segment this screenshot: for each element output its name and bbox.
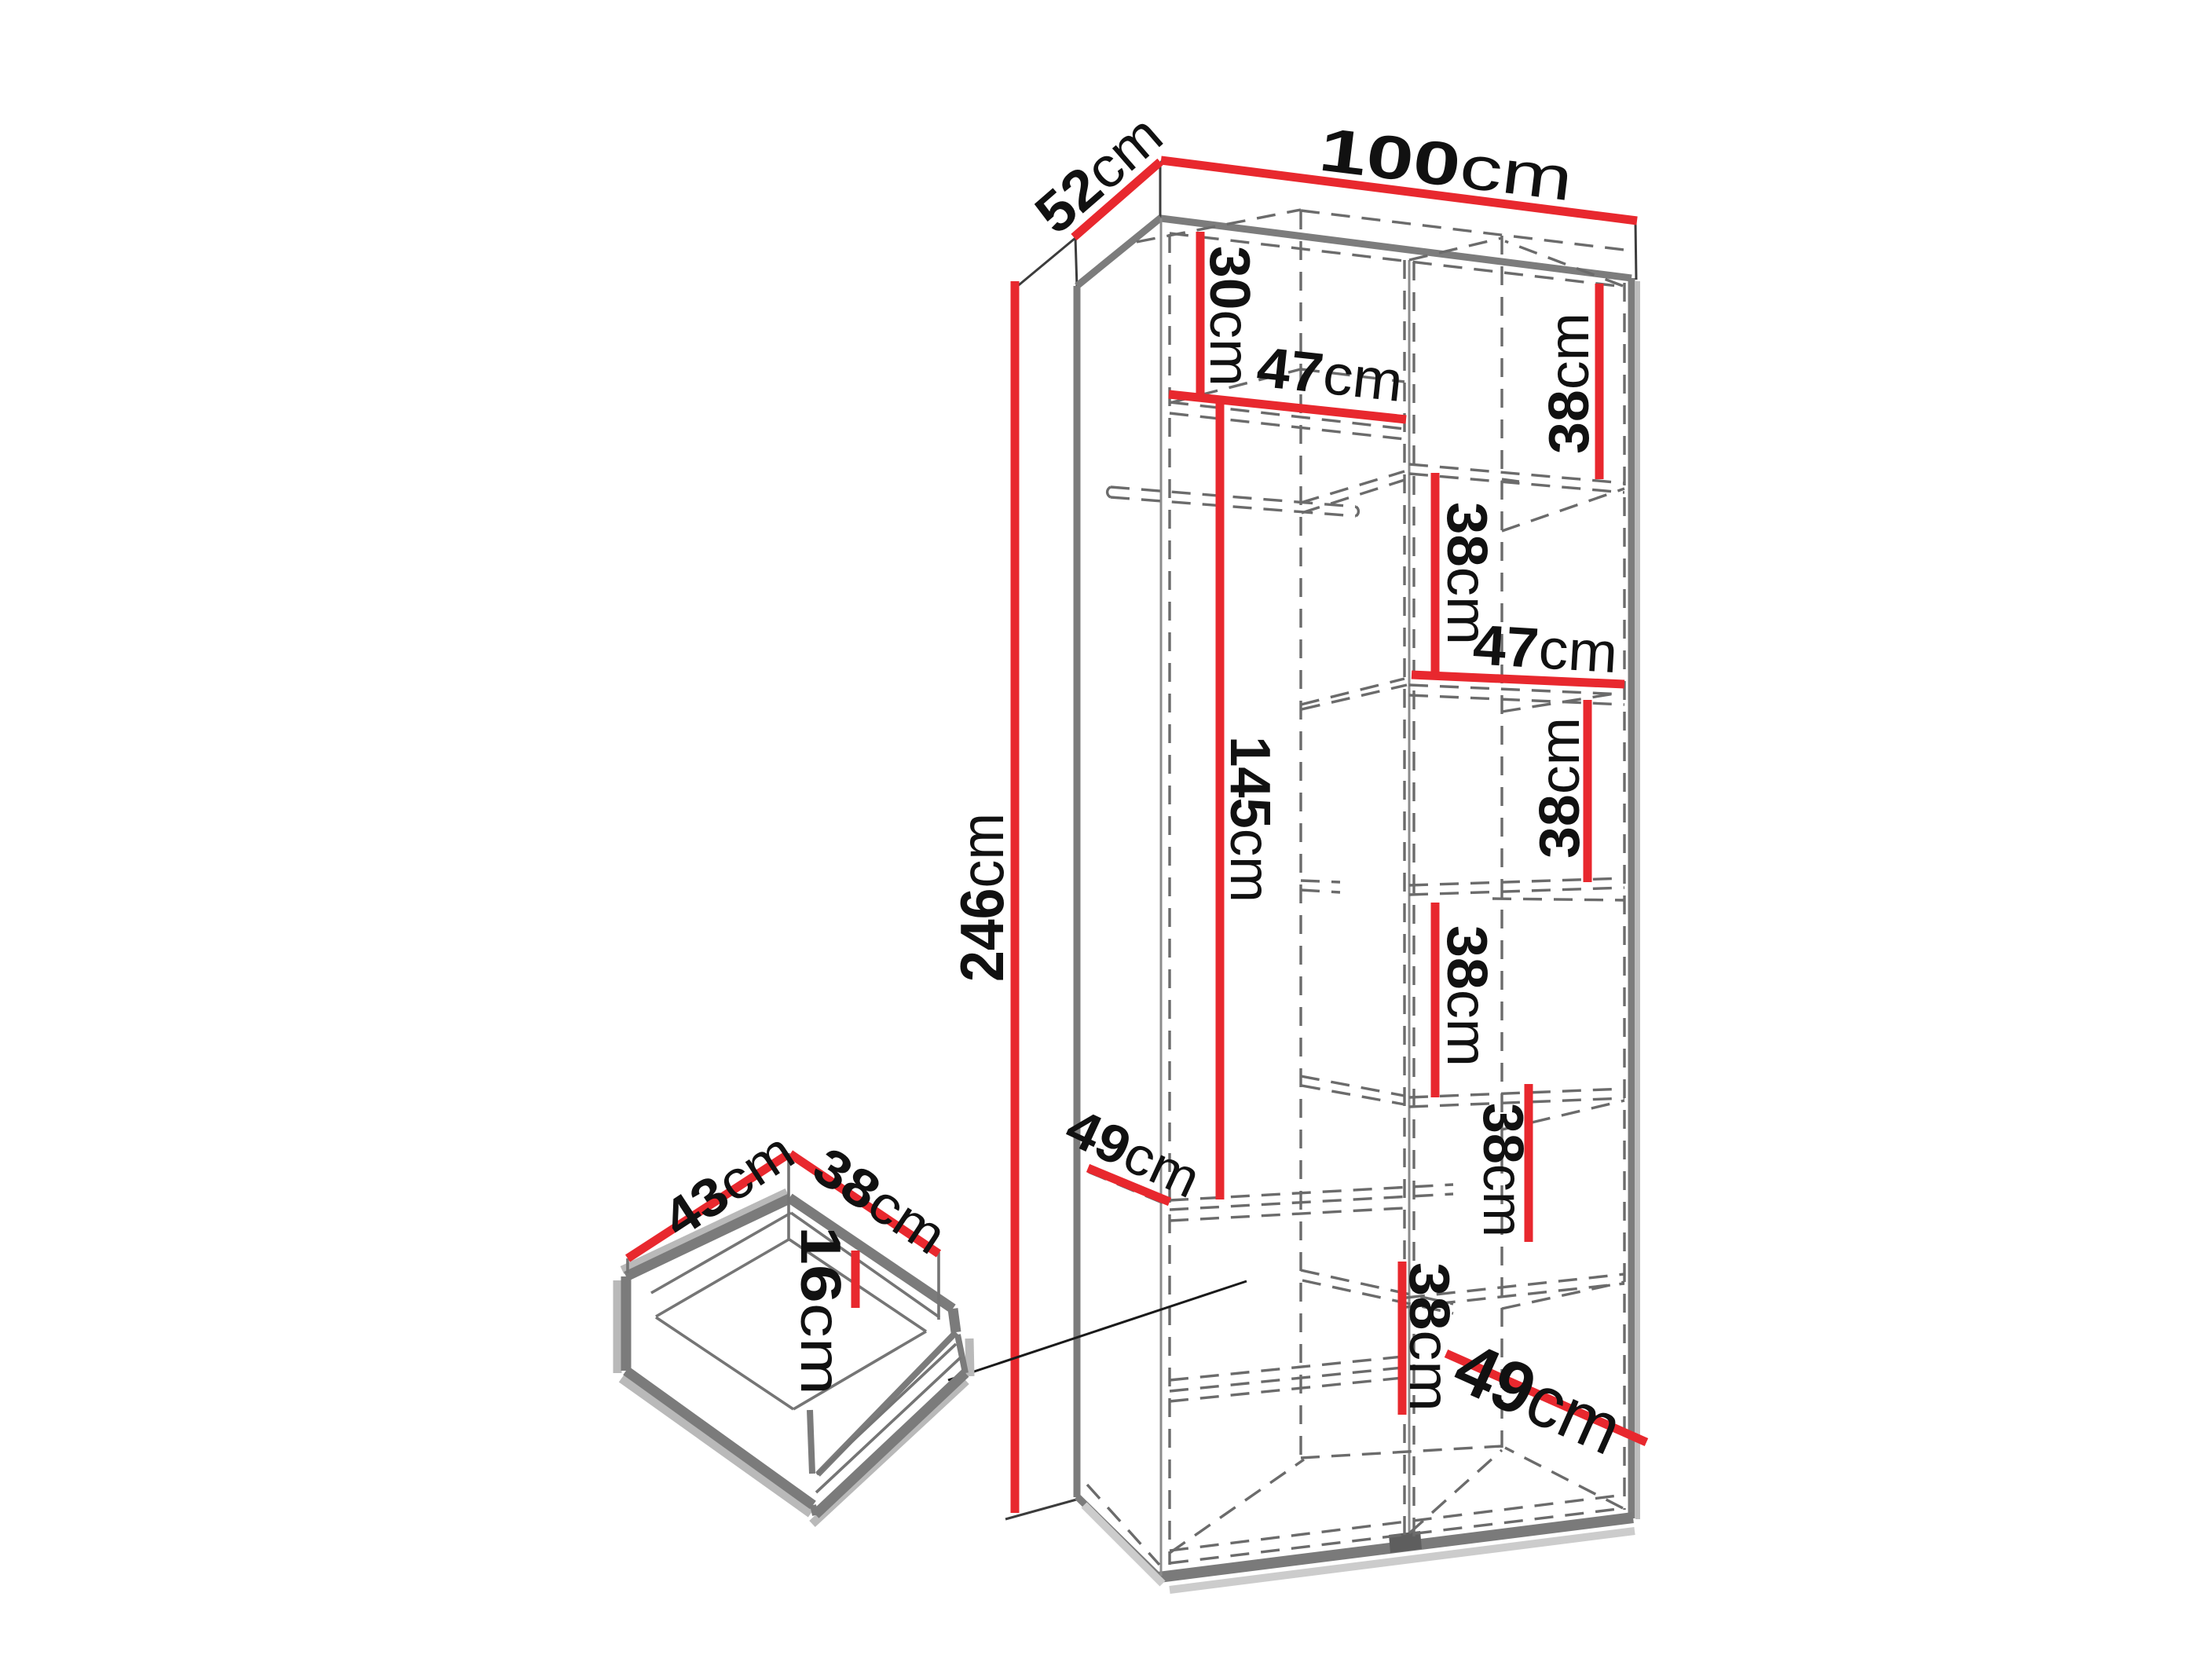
- svg-text:38cm: 38cm: [1538, 313, 1601, 454]
- svg-text:16cm: 16cm: [789, 1226, 851, 1395]
- svg-text:38cm: 38cm: [1435, 925, 1498, 1067]
- svg-text:246cm: 246cm: [947, 813, 1016, 982]
- svg-text:30cm: 30cm: [1198, 246, 1261, 386]
- svg-text:38cm: 38cm: [1471, 1103, 1534, 1237]
- svg-text:38cm: 38cm: [1529, 717, 1591, 859]
- svg-text:47cm: 47cm: [1471, 613, 1620, 685]
- svg-text:145cm: 145cm: [1218, 736, 1281, 903]
